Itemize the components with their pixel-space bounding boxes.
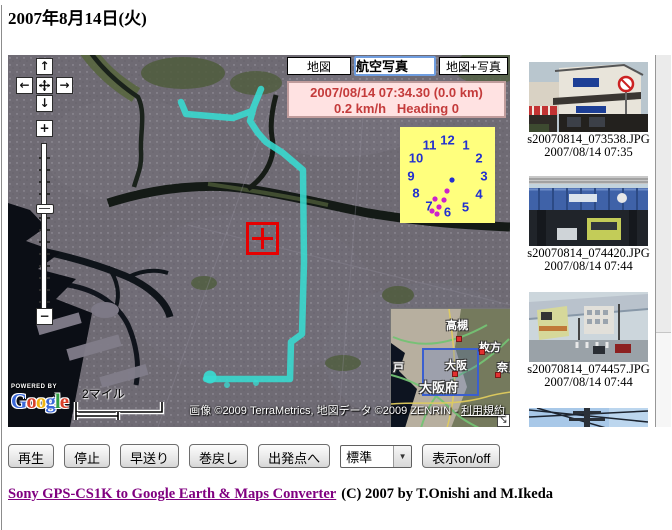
current-position-marker (246, 222, 279, 255)
google-logo[interactable]: POWERED BY Google (11, 384, 68, 414)
four-arrows-icon (39, 80, 50, 91)
status-speed-heading: 0.2 km/h Heading 0 (289, 101, 504, 117)
map-type-button-hybrid[interactable]: 地図+写真 (439, 57, 508, 75)
scrollbar-thumb[interactable] (656, 55, 671, 333)
zoom-slider-track[interactable] (41, 143, 47, 310)
photo-item[interactable] (522, 408, 655, 427)
page-title: 2007年8月14日(火) (8, 4, 147, 29)
overview-city-dot (479, 349, 485, 355)
go-to-start-button[interactable]: 出発点へ (258, 444, 330, 468)
photo-filename: s20070814_074457.JPG (522, 363, 655, 375)
attribution-text: 画像 ©2009 TerraMetrics, 地図データ ©2009 ZENRI… (189, 405, 461, 417)
rewind-button[interactable]: 巻戻し (189, 444, 248, 468)
photo-thumbnail[interactable] (529, 292, 648, 362)
map-type-button-map[interactable]: 地図 (287, 57, 351, 75)
speed-select-value: 標準 (341, 447, 393, 466)
stop-button[interactable]: 停止 (64, 444, 110, 468)
playback-controls: 再生 停止 早送り 巻戻し 出発点へ 標準 ▼ 表示on/off (8, 444, 500, 468)
photo-item[interactable]: s20070814_073538.JPG 2007/08/14 07:35 (522, 62, 655, 158)
map-type-button-satellite[interactable]: 航空写真 (354, 56, 436, 76)
pan-down-button[interactable]: ↓ (36, 95, 53, 112)
fast-forward-button[interactable]: 早送り (120, 444, 179, 468)
clock-hands-dots (400, 127, 495, 223)
footer: Sony GPS-CS1K to Google Earth & Maps Con… (8, 486, 553, 503)
zoom-slider-handle[interactable] (36, 204, 54, 214)
pan-left-button[interactable]: ← (16, 77, 33, 94)
photo-filename: s20070814_074420.JPG (522, 247, 655, 259)
overview-place-label: 戸 (393, 359, 404, 375)
frame-border (1, 5, 2, 530)
zoom-in-button[interactable]: + (36, 120, 53, 137)
photo-list: s20070814_073538.JPG 2007/08/14 07:35 (522, 55, 655, 427)
photo-time: 2007/08/14 07:44 (522, 260, 655, 272)
photo-item[interactable]: s20070814_074457.JPG 2007/08/14 07:44 (522, 292, 655, 388)
clock-widget: 12 1 2 3 4 5 6 7 8 9 10 11 (400, 127, 495, 223)
pan-center-button[interactable] (36, 77, 53, 94)
overview-city-dot (456, 336, 462, 342)
pan-up-button[interactable]: ↑ (36, 58, 53, 75)
terms-link[interactable]: 利用規約 (461, 405, 505, 417)
overview-place-label: 大阪府 (419, 377, 458, 396)
photo-thumbnail[interactable] (529, 408, 648, 427)
google-wordmark: Google (11, 389, 68, 414)
status-time: 2007/08/14 07:34.30 (0.0 km) (289, 85, 504, 101)
overview-city-dot (452, 371, 458, 377)
photo-filename: s20070814_073538.JPG (522, 133, 655, 145)
pan-right-button[interactable]: → (56, 77, 73, 94)
photo-thumbnail[interactable] (529, 176, 648, 246)
zoom-out-button[interactable]: − (36, 308, 53, 325)
map-attribution: 画像 ©2009 TerraMetrics, 地図データ ©2009 ZENRI… (189, 402, 505, 418)
display-toggle-button[interactable]: 表示on/off (422, 444, 500, 468)
photo-thumbnail[interactable] (529, 62, 648, 132)
photo-time: 2007/08/14 07:35 (522, 146, 655, 158)
status-box: 2007/08/14 07:34.30 (0.0 km) 0.2 km/h He… (287, 81, 506, 118)
scale-brackets (72, 400, 172, 424)
photo-list-scrollbar[interactable] (655, 55, 671, 427)
map-canvas[interactable]: ↑ ← → ↓ + − 地図 航空写真 地図+写真 2007/08/14 07:… (8, 55, 510, 427)
overview-city-dot (495, 372, 501, 378)
photo-time: 2007/08/14 07:44 (522, 376, 655, 388)
speed-select[interactable]: 標準 ▼ (340, 445, 412, 468)
converter-link[interactable]: Sony GPS-CS1K to Google Earth & Maps Con… (8, 486, 336, 502)
footer-copyright: (C) 2007 by T.Onishi and M.Ikeda (341, 486, 553, 502)
select-arrow-icon[interactable]: ▼ (393, 446, 411, 467)
overview-place-label: 高槻 (446, 317, 468, 333)
play-button[interactable]: 再生 (8, 444, 54, 468)
photo-item[interactable]: s20070814_074420.JPG 2007/08/14 07:44 (522, 176, 655, 272)
